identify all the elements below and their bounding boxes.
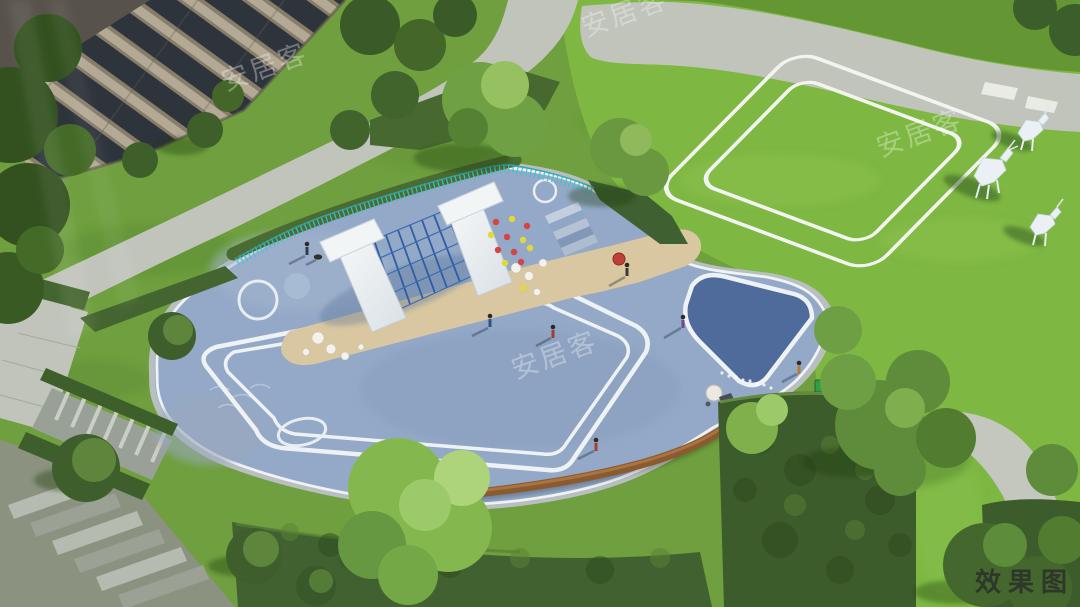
scene-art (0, 0, 1080, 607)
corner-label: 效果图 (975, 562, 1074, 599)
red-umbrella (613, 253, 625, 265)
rendering-canvas: 安居客 安居客 安居客 安居客 效果图 (0, 0, 1080, 607)
dog (314, 254, 322, 259)
